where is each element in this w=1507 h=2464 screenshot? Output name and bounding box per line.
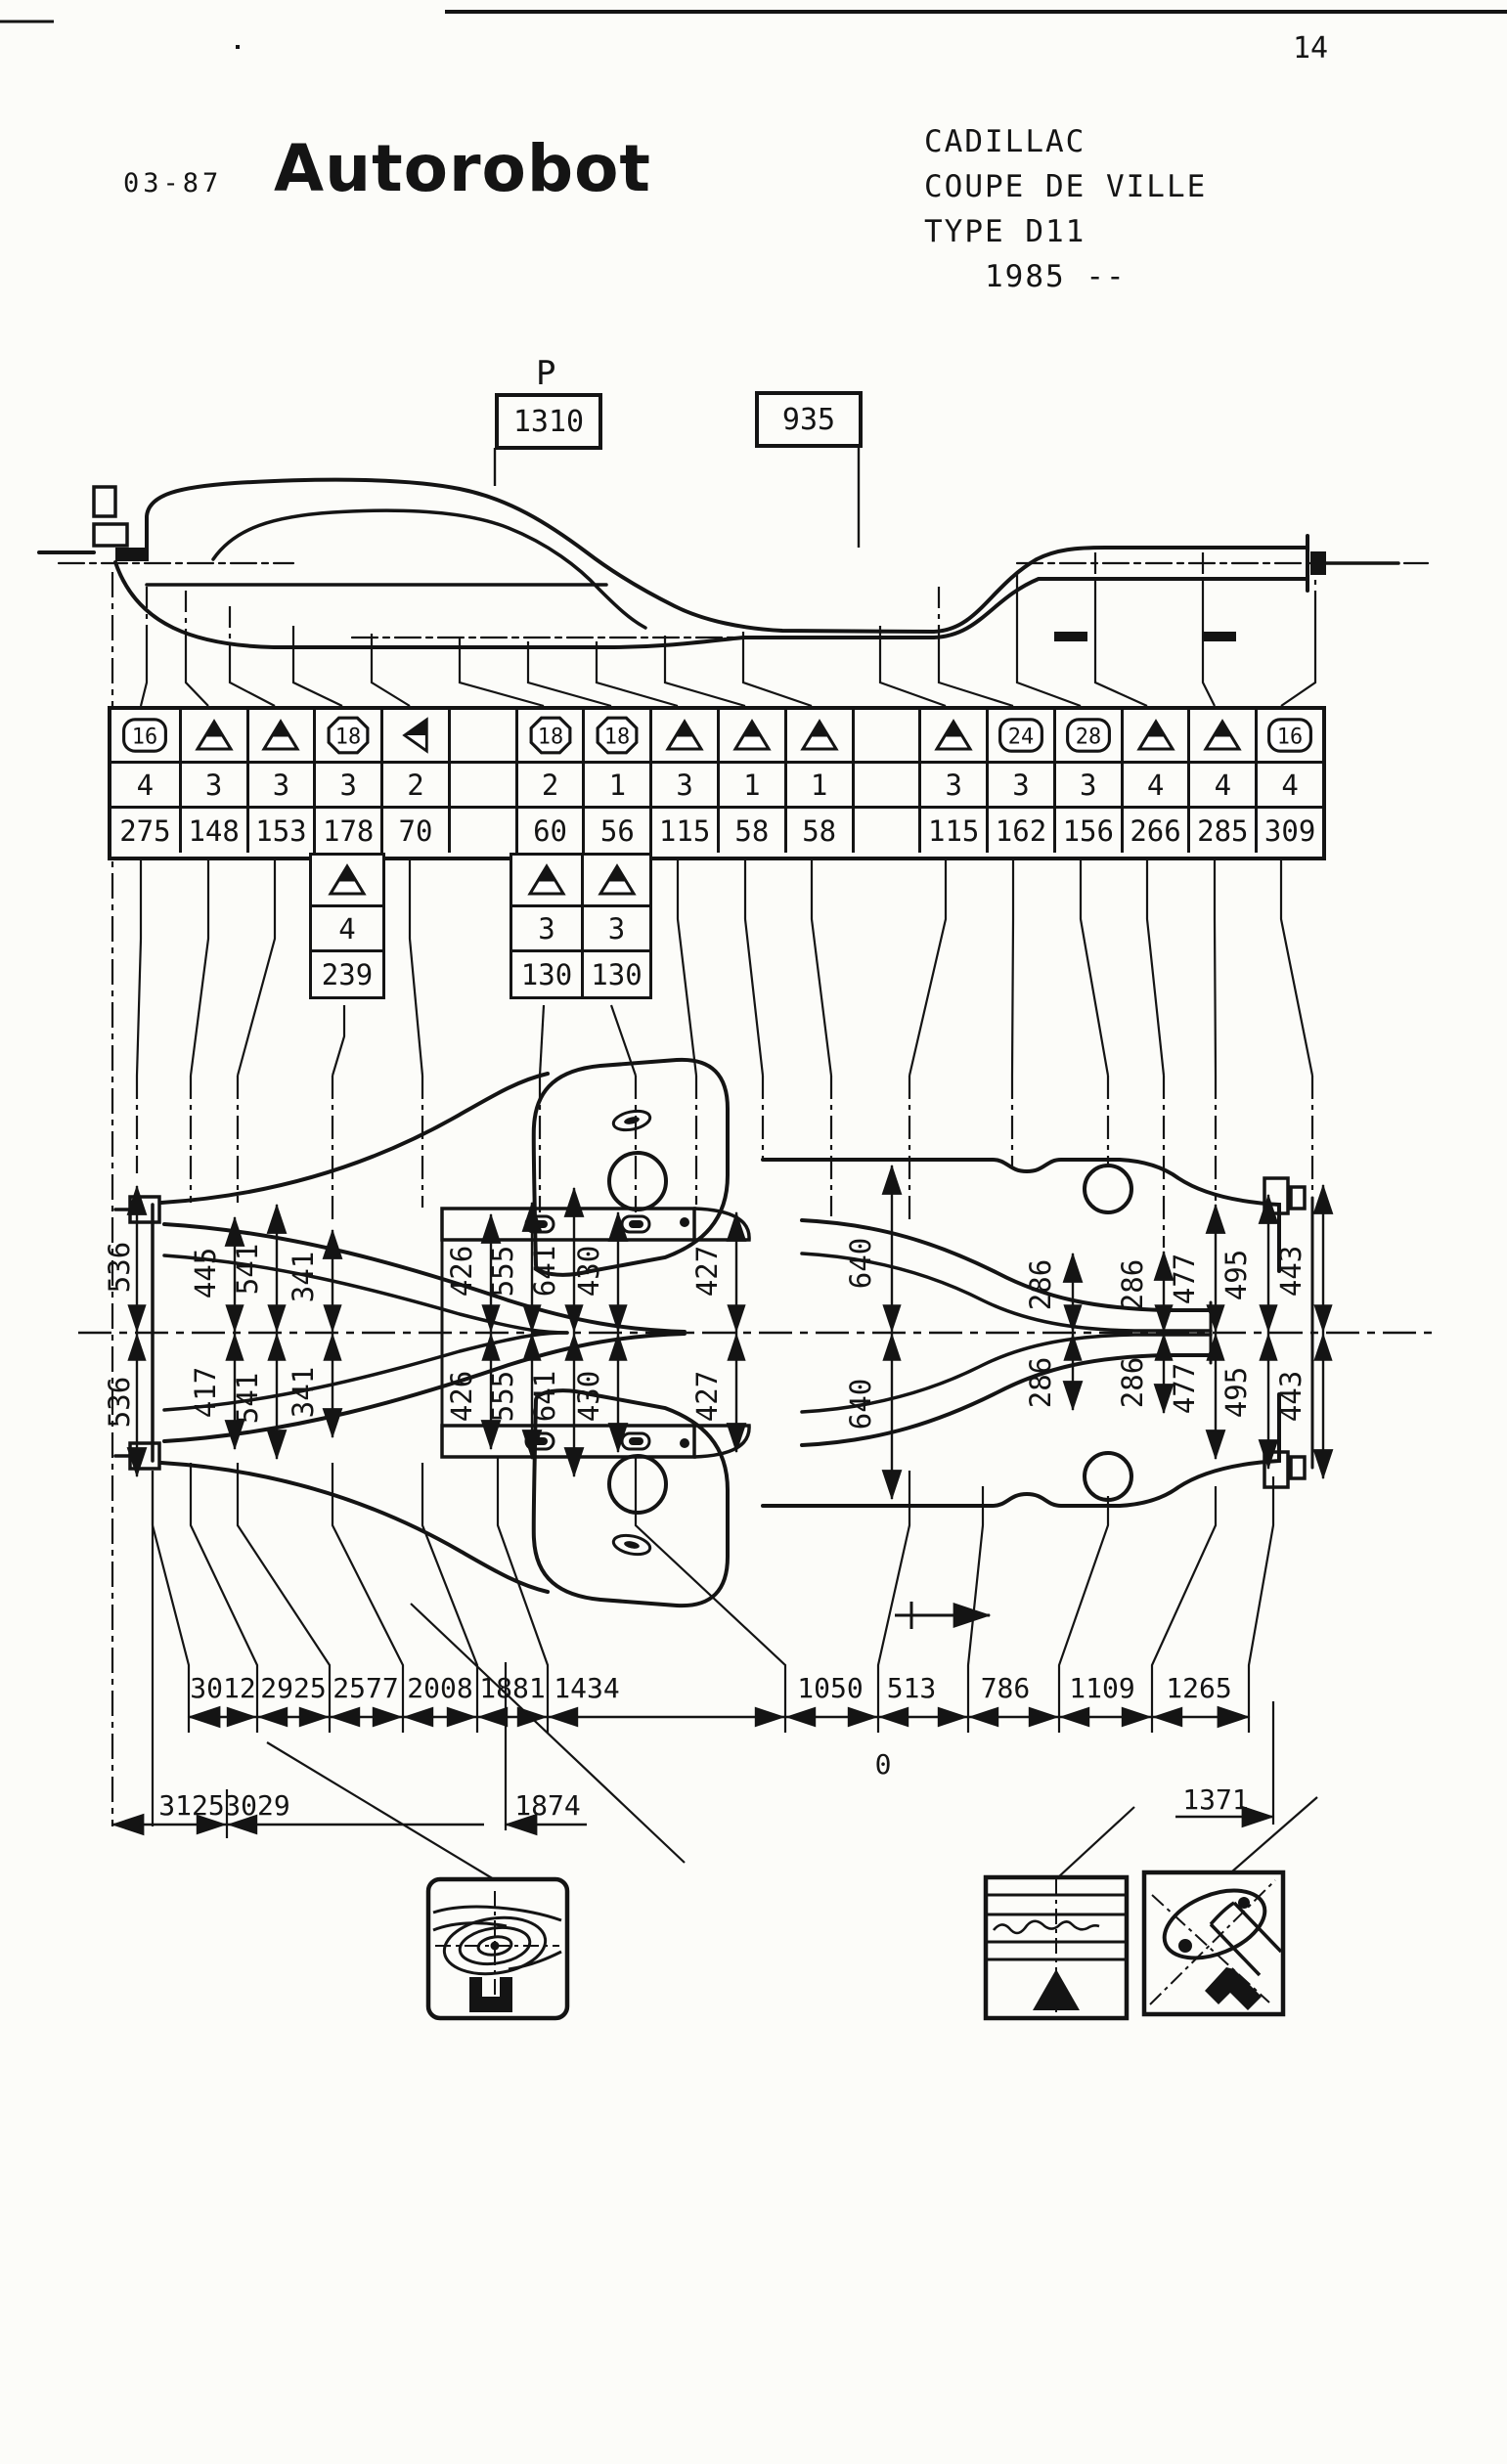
width-dimension-label: 286 [1117, 1324, 1148, 1441]
value-cell [448, 806, 515, 853]
clamp-octagon-icon: 18 [528, 715, 573, 756]
width-dimension-label: 426 [446, 1212, 477, 1330]
count-cell: 2 [380, 761, 448, 806]
value-cell [852, 806, 919, 853]
width-dimension-label: 495 [1220, 1334, 1252, 1451]
datum-zero-label: 0 [820, 1750, 947, 1780]
overall-length-label: 3029 [194, 1791, 321, 1821]
width-dimension-label: 641 [529, 1212, 560, 1330]
width-dimension-label: 443 [1275, 1212, 1307, 1330]
length-dimension-label: 1265 [1135, 1674, 1263, 1703]
count-cell: 4 [312, 904, 382, 949]
count-cell: 3 [581, 904, 649, 949]
count-cell [448, 761, 515, 806]
symbol-cell [852, 710, 919, 761]
width-dimension-label: 427 [691, 1338, 723, 1455]
value-cell: 56 [582, 806, 649, 853]
measuring-point-triangle-icon [261, 718, 300, 753]
svg-text:16: 16 [1277, 725, 1303, 749]
value-cell: 115 [649, 806, 717, 853]
sub-table-a: 4239 [309, 853, 385, 999]
svg-text:18: 18 [335, 725, 361, 749]
symbol-cell [246, 710, 314, 761]
symbol-cell: 24 [986, 710, 1053, 761]
symbol-cell [312, 856, 382, 904]
width-dimension-label: 430 [573, 1212, 604, 1330]
value-cell: 70 [380, 806, 448, 853]
symbol-cell: 18 [515, 710, 583, 761]
sub-table-b: 33130130 [510, 853, 652, 999]
side-point-triangle-icon [400, 716, 431, 755]
measuring-point-triangle-icon [800, 718, 839, 753]
symbol-cell [1187, 710, 1255, 761]
value-cell: 148 [179, 806, 246, 853]
width-dimension-label: 641 [529, 1338, 560, 1455]
svg-text:18: 18 [604, 725, 630, 749]
count-cell [852, 761, 919, 806]
clamp-octagon-icon: 18 [595, 715, 640, 756]
measuring-point-triangle-icon [598, 862, 637, 898]
count-cell: 3 [986, 761, 1053, 806]
measuring-point-triangle-icon [665, 718, 704, 753]
value-cell: 178 [313, 806, 380, 853]
measuring-point-triangle-icon [1136, 718, 1175, 753]
count-cell: 3 [179, 761, 246, 806]
count-cell: 2 [515, 761, 583, 806]
measuring-point-triangle-icon [1203, 718, 1242, 753]
width-dimension-label: 640 [845, 1205, 876, 1322]
mid-ref-label: 1874 [484, 1791, 611, 1821]
rear-plate-clamp-icon [1144, 1872, 1283, 2014]
rear-ref-label: 1371 [1152, 1785, 1279, 1815]
symbol-cell [649, 710, 717, 761]
count-cell: 3 [512, 904, 581, 949]
value-cell: 153 [246, 806, 314, 853]
catalog-page: { "page": { "number": "14", "doc_code": … [0, 0, 1507, 2464]
value-cell: 266 [1121, 806, 1188, 853]
width-dimension-label: 341 [288, 1334, 319, 1451]
measuring-point-triangle-icon [934, 718, 973, 753]
width-dimension-label: 417 [190, 1334, 221, 1451]
symbol-cell [512, 856, 581, 904]
width-dimension-label: 536 [104, 1343, 135, 1461]
sill-seam-gauge-icon [986, 1877, 1127, 2018]
value-cell: 130 [512, 949, 581, 996]
symbol-cell [179, 710, 246, 761]
width-dimension-label: 341 [288, 1218, 319, 1336]
count-cell: 3 [1053, 761, 1121, 806]
value-cell: 58 [784, 806, 852, 853]
clamp-octagon-icon: 18 [326, 715, 371, 756]
plate-badge-icon: 24 [997, 717, 1044, 754]
width-dimension-label: 477 [1169, 1330, 1200, 1447]
plate-badge-icon: 16 [1266, 717, 1313, 754]
svg-text:16: 16 [132, 725, 157, 749]
plate-badge-icon: 16 [121, 717, 168, 754]
value-cell: 309 [1255, 806, 1322, 853]
symbol-cell: 18 [582, 710, 649, 761]
measuring-point-table: 1618181824281643332213113334442751481531… [108, 706, 1326, 860]
count-cell: 1 [784, 761, 852, 806]
length-dimension-label: 1434 [523, 1674, 650, 1703]
plate-badge-icon: 28 [1065, 717, 1112, 754]
count-cell: 3 [313, 761, 380, 806]
symbol-cell [717, 710, 784, 761]
count-cell: 4 [1187, 761, 1255, 806]
count-cell: 3 [918, 761, 986, 806]
symbol-cell [784, 710, 852, 761]
count-cell: 4 [111, 761, 179, 806]
width-dimension-label: 536 [104, 1209, 135, 1326]
leaders-to-icons [267, 1604, 1317, 1879]
width-dimension-label: 477 [1169, 1220, 1200, 1338]
width-dimension-label: 555 [487, 1212, 518, 1330]
symbol-cell [581, 856, 649, 904]
count-cell: 1 [717, 761, 784, 806]
width-dimension-label: 445 [190, 1214, 221, 1332]
symbol-cell [1121, 710, 1188, 761]
symbol-cell: 18 [313, 710, 380, 761]
count-cell: 3 [246, 761, 314, 806]
count-cell: 3 [649, 761, 717, 806]
value-cell: 239 [312, 949, 382, 996]
value-cell: 285 [1187, 806, 1255, 853]
value-cell: 58 [717, 806, 784, 853]
count-cell: 1 [582, 761, 649, 806]
measuring-point-triangle-icon [328, 862, 367, 898]
width-dimension-label: 555 [487, 1338, 518, 1455]
measuring-point-triangle-icon [527, 862, 566, 898]
measuring-point-triangle-icon [195, 718, 234, 753]
width-dimension-label: 286 [1025, 1324, 1056, 1441]
measuring-point-triangle-icon [732, 718, 772, 753]
symbol-cell: 28 [1053, 710, 1121, 761]
value-cell: 60 [515, 806, 583, 853]
count-cell: 4 [1121, 761, 1188, 806]
side-view-profile [39, 480, 1428, 647]
symbol-cell [380, 710, 448, 761]
width-dimension-label: 427 [691, 1212, 723, 1330]
leaders-to-table [141, 552, 1315, 706]
symbol-cell [918, 710, 986, 761]
svg-text:18: 18 [537, 725, 562, 749]
symbol-cell [448, 710, 515, 761]
svg-text:24: 24 [1008, 725, 1034, 749]
width-dimension-label: 430 [573, 1338, 604, 1455]
value-cell: 275 [111, 806, 179, 853]
width-dimension-label: 640 [845, 1345, 876, 1463]
width-dimension-label: 541 [232, 1340, 263, 1457]
count-cell: 4 [1255, 761, 1322, 806]
width-dimension-label: 426 [446, 1338, 477, 1455]
value-cell: 130 [581, 949, 649, 996]
symbol-cell: 16 [111, 710, 179, 761]
wheel-housing-gauge-icon [428, 1879, 567, 2018]
value-cell: 115 [918, 806, 986, 853]
symbol-cell: 16 [1255, 710, 1322, 761]
value-cell: 156 [1053, 806, 1121, 853]
value-cell: 162 [986, 806, 1053, 853]
width-dimension-label: 495 [1220, 1216, 1252, 1334]
width-dimension-label: 541 [232, 1210, 263, 1328]
svg-text:28: 28 [1076, 725, 1101, 749]
width-dimension-label: 443 [1275, 1338, 1307, 1455]
